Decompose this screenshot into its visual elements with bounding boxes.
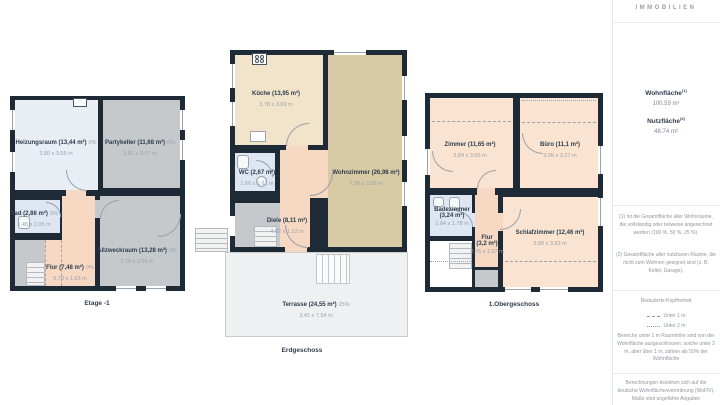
window-marker — [402, 136, 407, 160]
wohnflaeche-label: Wohnfläche(1) — [612, 88, 720, 97]
window-marker — [402, 76, 407, 100]
room-label-buero: Büro (11,1 m²) 3.95 x 3.27 m — [540, 133, 580, 159]
sidebar-divider — [613, 22, 720, 23]
sidebar-divider-vertical — [612, 0, 613, 405]
sink-icon — [250, 131, 266, 142]
room-label-badezimmer: Badezimmer (3,24 m²) 1.84 x 1.78 m — [434, 207, 470, 227]
stairs-icon — [26, 262, 45, 286]
room-label-diele: Diele (8,11 m²) 4.02 x 1.13 m — [267, 209, 307, 235]
room-label-schlafzimmer: Schlafzimmer (12,46 m²) 3.88 x 3.83 m — [516, 221, 585, 247]
disclaimer: Berechnungen beziehen sich auf die deuts… — [616, 380, 716, 403]
footnote-2: (2) Gesamtfläche aller nutzbaren Räume, … — [616, 252, 716, 275]
window-marker — [10, 152, 15, 172]
exterior-stairs-icon — [195, 228, 228, 252]
headroom-line-schlafzimmer — [505, 261, 596, 262]
wohnflaeche-value: 100.59 m² — [612, 101, 720, 107]
window-marker — [10, 110, 15, 130]
window-marker — [598, 146, 603, 174]
window-marker — [230, 64, 235, 88]
room-label-kueche: Küche (13,95 m²) 3.78 x 3.69 m — [252, 82, 300, 108]
room-label-flur-og: Flur (3,2 m²) 2.76 x 1.07 m — [470, 235, 503, 255]
floorplan-erdgeschoss — [230, 50, 407, 252]
window-marker — [116, 286, 136, 291]
window-marker — [505, 287, 531, 292]
headroom-legend-title: Reduzierte Kopffreiheit — [616, 298, 716, 304]
room-label-partykeller: Partykeller (11,68 m²)0% 3.81 x 3.07 m — [105, 131, 175, 157]
room-label-heizungsraum: Heizungsraum (13,44 m²)0% 3.80 x 3.55 m — [16, 131, 97, 157]
room-podest — [475, 270, 498, 287]
stairs-icon — [449, 243, 472, 269]
window-marker — [146, 286, 166, 291]
floor-title-obergeschoss: 1.Obergeschoss — [489, 301, 540, 308]
headroom-line-buero-1m — [522, 100, 596, 101]
nutzflaeche-label: Nutzfläche(2) — [612, 116, 720, 125]
chimney-icon — [73, 98, 87, 107]
room-wohnzimmer — [328, 55, 402, 247]
dotted-line-sample — [647, 326, 660, 327]
sidebar-divider — [613, 205, 720, 206]
room-flur-og — [475, 195, 498, 267]
exterior-door-opening — [230, 216, 235, 236]
sidebar-divider — [613, 290, 720, 291]
room-label-wc: WC (2,67 m²) 1.66 x 1.61 m — [239, 161, 275, 187]
floorplan-obergeschoss — [425, 93, 603, 292]
room-label-allzweckraum: Allzweckraum (13,28 m²)0% 3.78 x 3.56 m — [97, 239, 177, 265]
nutzflaeche-value: 48.74 m² — [612, 129, 720, 135]
brand-logo: IMMOBILIEN — [612, 5, 720, 11]
floor-title-erdgeschoss: Erdgeschoss — [282, 347, 323, 354]
sink-icon — [433, 197, 444, 207]
window-marker — [402, 182, 407, 206]
headroom-line-buero-2m — [522, 122, 596, 123]
headroom-line-zimmer — [432, 121, 511, 122]
room-label-bad: Bad (2,86 m²)0% 1.45 x 2.05 m — [10, 202, 58, 228]
room-label-wohnzimmer: Wohnzimmer (26,98 m²) 7.99 x 3.09 m — [332, 161, 399, 187]
window-marker — [540, 287, 568, 292]
floor-title-etage-1: Etage -1 — [84, 300, 109, 307]
area-summary: Wohnfläche(1) 100.59 m² Nutzfläche(2) 48… — [612, 88, 720, 144]
dashed-line-sample — [647, 316, 660, 317]
room-label-zimmer: Zimmer (11,65 m²) 3.84 x 3.55 m — [444, 133, 495, 159]
stairs-icon — [316, 254, 350, 284]
window-marker — [230, 102, 235, 126]
headroom-legend-item-1m: Unter 1 m — [616, 313, 716, 319]
headroom-line-dachraum — [430, 261, 472, 262]
sidebar-divider — [613, 373, 720, 374]
window-marker — [334, 50, 366, 55]
stove-icon — [252, 53, 267, 65]
headroom-legend-item-2m: Unter 2 m — [616, 323, 716, 329]
window-marker — [180, 110, 185, 130]
footnote-1: (1) Ist die Gesamtfläche aller Wohnräume… — [616, 214, 716, 237]
floorplan-page: Heizungsraum (13,44 m²)0% 3.80 x 3.55 m … — [0, 0, 720, 405]
room-label-terrasse: Terrasse (24,55 m²)25% 3.41 x 7.54 m — [282, 293, 349, 319]
window-marker — [425, 149, 430, 175]
window-marker — [598, 198, 603, 226]
window-marker — [180, 140, 185, 160]
headroom-description: Bereiche unter 1 m Raumhöhe sind von der… — [616, 333, 716, 364]
room-label-flur-etage-1: Flur (7,48 m²)0% 5.73 x 1.63 m — [46, 256, 94, 282]
